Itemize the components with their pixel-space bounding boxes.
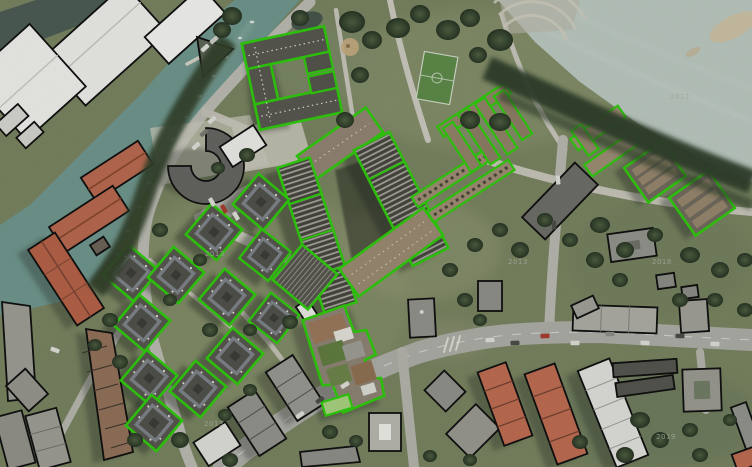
orthophoto-image: 2012 2013 2018 2013 2013 2019	[0, 0, 752, 467]
aerial-map-canvas[interactable]: 2012 2013 2018 2013 2013 2019	[0, 0, 752, 467]
photo-grain-overlay	[0, 0, 752, 467]
